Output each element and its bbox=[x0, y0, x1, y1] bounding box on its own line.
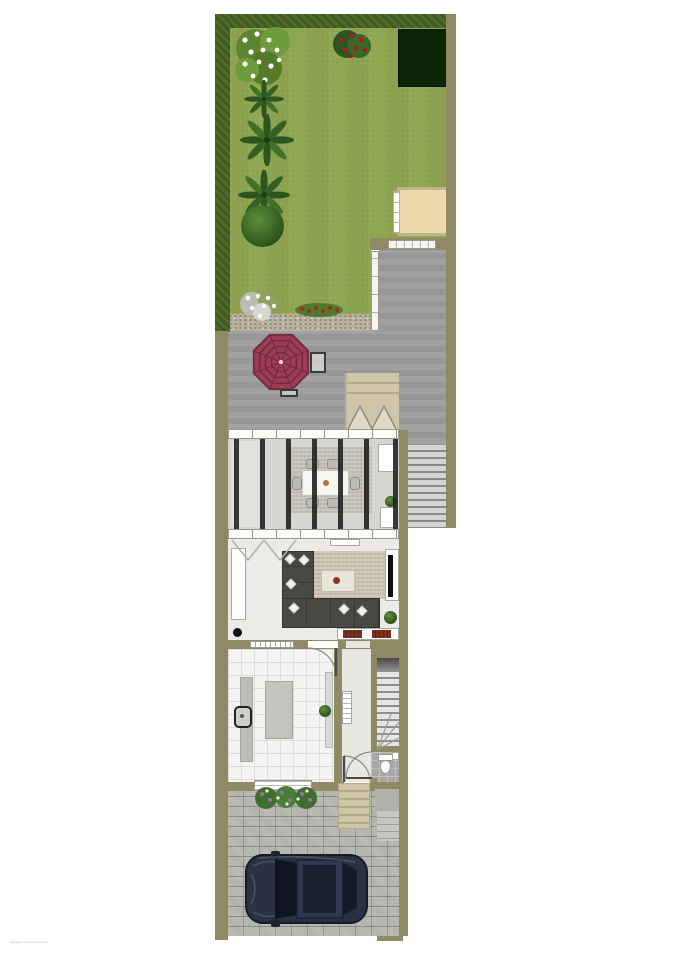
door-swing-overlay bbox=[215, 370, 415, 790]
wall-outer-right-garden bbox=[446, 14, 456, 528]
flower-planters bbox=[254, 785, 318, 811]
floor-plan-canvas: ——— —— ———— bbox=[0, 0, 679, 960]
garden-gate bbox=[388, 240, 436, 249]
white-flowers bbox=[238, 288, 290, 322]
palm-plant bbox=[236, 114, 298, 166]
car bbox=[245, 851, 369, 927]
dark-garden-shed bbox=[398, 29, 450, 87]
front-steps bbox=[338, 783, 370, 829]
palm-plant bbox=[238, 80, 290, 118]
round-bush bbox=[241, 205, 284, 247]
shed-door bbox=[393, 191, 400, 233]
beige-storage-shed bbox=[397, 187, 449, 236]
watermark-text: ——— —— ———— bbox=[10, 940, 70, 946]
hedge-left bbox=[215, 14, 230, 332]
entry-landing bbox=[375, 789, 399, 811]
garden-fence bbox=[371, 251, 379, 331]
entry-steps-lower bbox=[377, 811, 399, 841]
berry-bush bbox=[331, 28, 373, 64]
red-flowerbed bbox=[294, 302, 344, 318]
